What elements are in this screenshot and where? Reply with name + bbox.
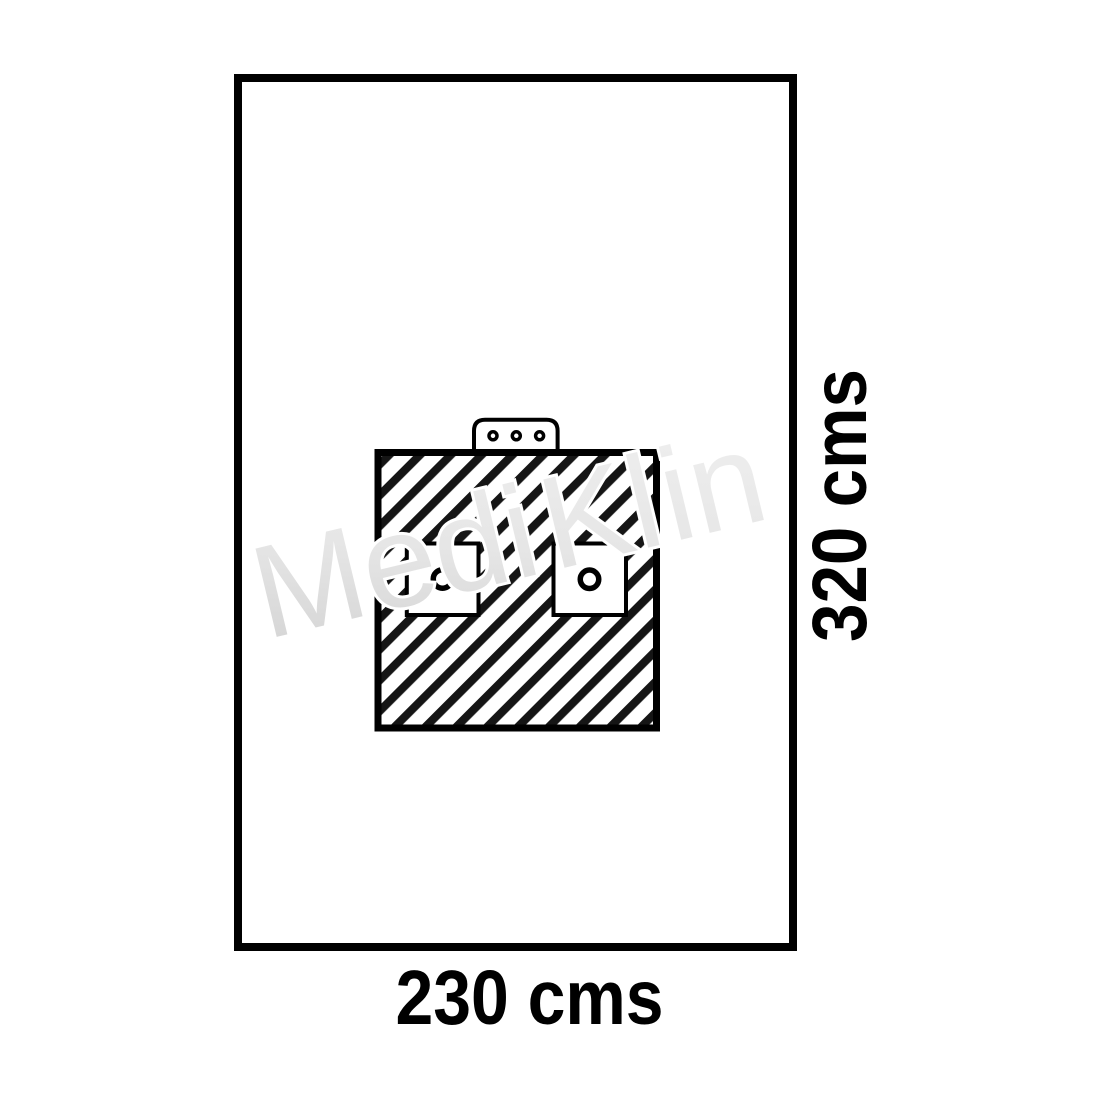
svg-text:230 cms: 230 cms <box>396 955 664 1041</box>
svg-text:320 cms: 320 cms <box>797 369 883 642</box>
